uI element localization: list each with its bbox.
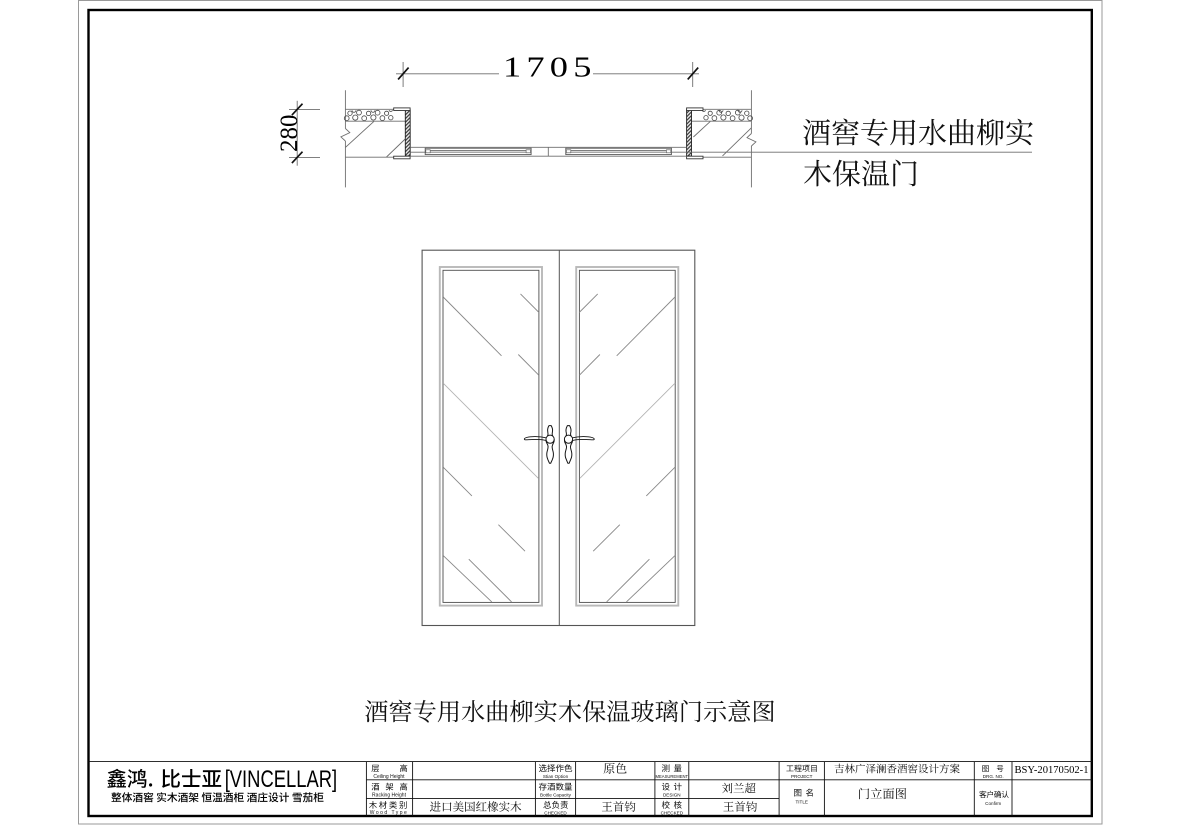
svg-text:PROJECT: PROJECT <box>791 774 813 779</box>
svg-text:Wood Type: Wood Type <box>370 810 409 816</box>
svg-text:CHECKED: CHECKED <box>661 811 684 816</box>
svg-text:MEASUREMENT: MEASUREMENT <box>656 774 689 779</box>
svg-text:DESIGN: DESIGN <box>663 792 681 797</box>
svg-text:Ceiling Height: Ceiling Height <box>373 774 405 780</box>
svg-text:Bottle Capacity: Bottle Capacity <box>540 792 572 797</box>
svg-text:TITLE: TITLE <box>795 800 808 805</box>
svg-text:Racking Height: Racking Height <box>372 792 407 798</box>
svg-text:DRG. NO.: DRG. NO. <box>983 774 1004 779</box>
svg-text:Stian Option: Stian Option <box>543 774 569 779</box>
svg-text:1705: 1705 <box>503 52 597 83</box>
svg-text:Confirm: Confirm <box>985 801 1001 806</box>
svg-text:[VINCELLAR]: [VINCELLAR] <box>225 767 337 793</box>
svg-text:CHECKED: CHECKED <box>544 811 567 816</box>
svg-text:280: 280 <box>276 114 303 152</box>
svg-text:BSY-20170502-1: BSY-20170502-1 <box>1015 764 1089 776</box>
